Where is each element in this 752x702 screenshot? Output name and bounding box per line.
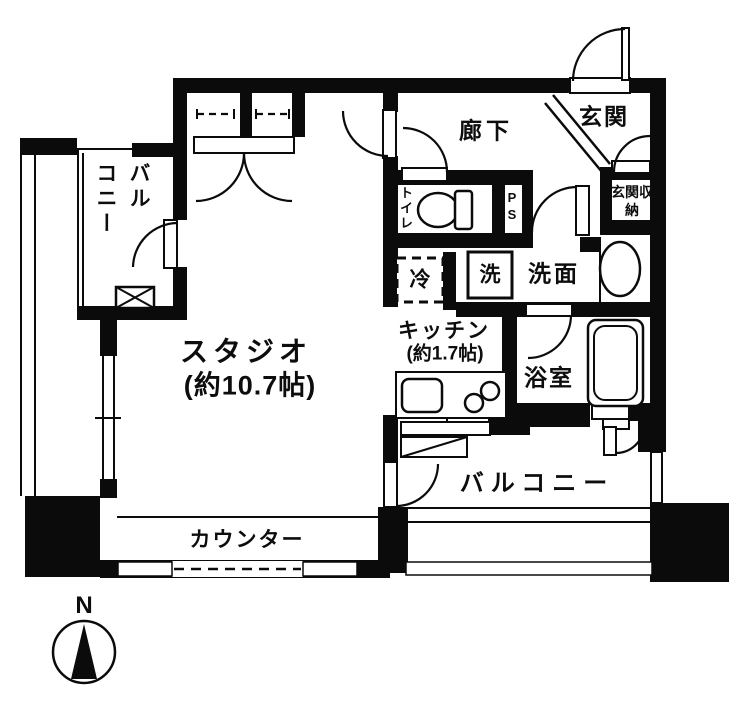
floor-plan: スタジオ (約10.7帖) キッチン (約1.7帖) 廊下 玄関 玄関収納 トイ…	[0, 0, 752, 702]
entrance-label: 玄関	[579, 106, 629, 129]
studio-balcony-door-arc	[396, 464, 438, 506]
stove-burner-icon-2	[481, 382, 499, 400]
entry-door-arc	[573, 29, 625, 81]
bottom-windows	[118, 561, 357, 577]
balcony-upper-label-col1: バル	[128, 162, 149, 212]
wall-outer-left-top	[20, 138, 77, 155]
wall-toilet-bottom	[396, 233, 533, 248]
floor-plan-canvas	[0, 0, 752, 702]
toilet-label: トイレ	[399, 186, 412, 231]
refrigerator-label: 冷	[410, 270, 431, 291]
compass-north-label: N	[75, 594, 92, 618]
toilet-bowl-icon	[418, 193, 458, 227]
wall-washroom-top-stub	[580, 237, 600, 252]
washroom-door-leaf	[576, 186, 589, 235]
bath-door-leaf	[526, 304, 572, 316]
kitchen-sink-icon	[402, 379, 442, 412]
window-frame-right	[303, 562, 357, 576]
counter-label: カウンター	[190, 530, 305, 551]
pipe-space-label: PS	[504, 190, 520, 224]
kitchen-front-bar	[401, 422, 490, 435]
toilet-door-arc	[403, 128, 447, 172]
wall-closet-divider	[240, 93, 252, 137]
balcony-lower-label: バルコニー	[460, 472, 615, 496]
wall-storage-bottom	[600, 220, 666, 235]
kitchen-size-label: (約1.7帖)	[406, 345, 483, 364]
wall-right	[650, 78, 666, 408]
balcony-slab-edge	[406, 562, 652, 575]
studio-door-arc	[343, 111, 388, 156]
balcony-right-railing	[651, 452, 662, 503]
bathtub-inner-icon	[594, 326, 637, 400]
studio-door-leaf	[383, 110, 396, 158]
washroom-door-arc	[532, 187, 577, 232]
storage-door-leaf	[612, 161, 650, 173]
wall-top	[173, 78, 573, 93]
balcony-left-door-leaf	[164, 220, 177, 268]
stove-burner-icon-1	[465, 394, 483, 412]
kitchen-label: キッチン	[398, 321, 490, 342]
studio-label: スタジオ	[180, 338, 312, 366]
bath-door-arc	[528, 315, 571, 358]
entrance-storage-label: 玄関収納	[610, 184, 654, 219]
wall-bath-bottom	[517, 403, 590, 427]
evacuation-hatch-icon	[116, 287, 154, 308]
wall-balcony-right-lower	[173, 267, 187, 312]
hallway-label: 廊下	[459, 120, 513, 143]
wall-fridge-right	[443, 252, 456, 310]
block-bottom-right	[650, 503, 729, 582]
washer-label: 洗	[480, 265, 501, 286]
block-bottom-left	[25, 496, 100, 577]
compass-icon	[53, 621, 115, 683]
wall-balcony-right-upper	[173, 143, 187, 220]
bath-balcony-door-leaf	[604, 427, 616, 455]
wall-closet-right	[292, 93, 305, 137]
closet-door-arc-right	[244, 153, 292, 201]
studio-size-label: (約10.7帖)	[184, 373, 317, 400]
closet-door-arc-left	[196, 153, 244, 201]
closet-front-bar	[194, 137, 294, 153]
balcony-upper-label-col2: コニー	[95, 162, 116, 237]
washroom-label: 洗面	[528, 263, 580, 286]
toilet-tank-icon	[455, 191, 472, 229]
washbasin-icon	[600, 242, 640, 296]
wall-studio-left-upper	[100, 306, 117, 356]
window-frame-left	[118, 562, 172, 576]
studio-balcony-door-leaf	[384, 462, 397, 507]
wall-chunk-balcony-left	[378, 507, 408, 573]
toilet-door-leaf	[402, 168, 447, 181]
wall-studio-right-c	[383, 415, 398, 463]
wall-studio-left-lower	[100, 479, 117, 498]
bathroom-label: 浴室	[524, 367, 574, 390]
entry-door-leaf	[622, 28, 629, 80]
